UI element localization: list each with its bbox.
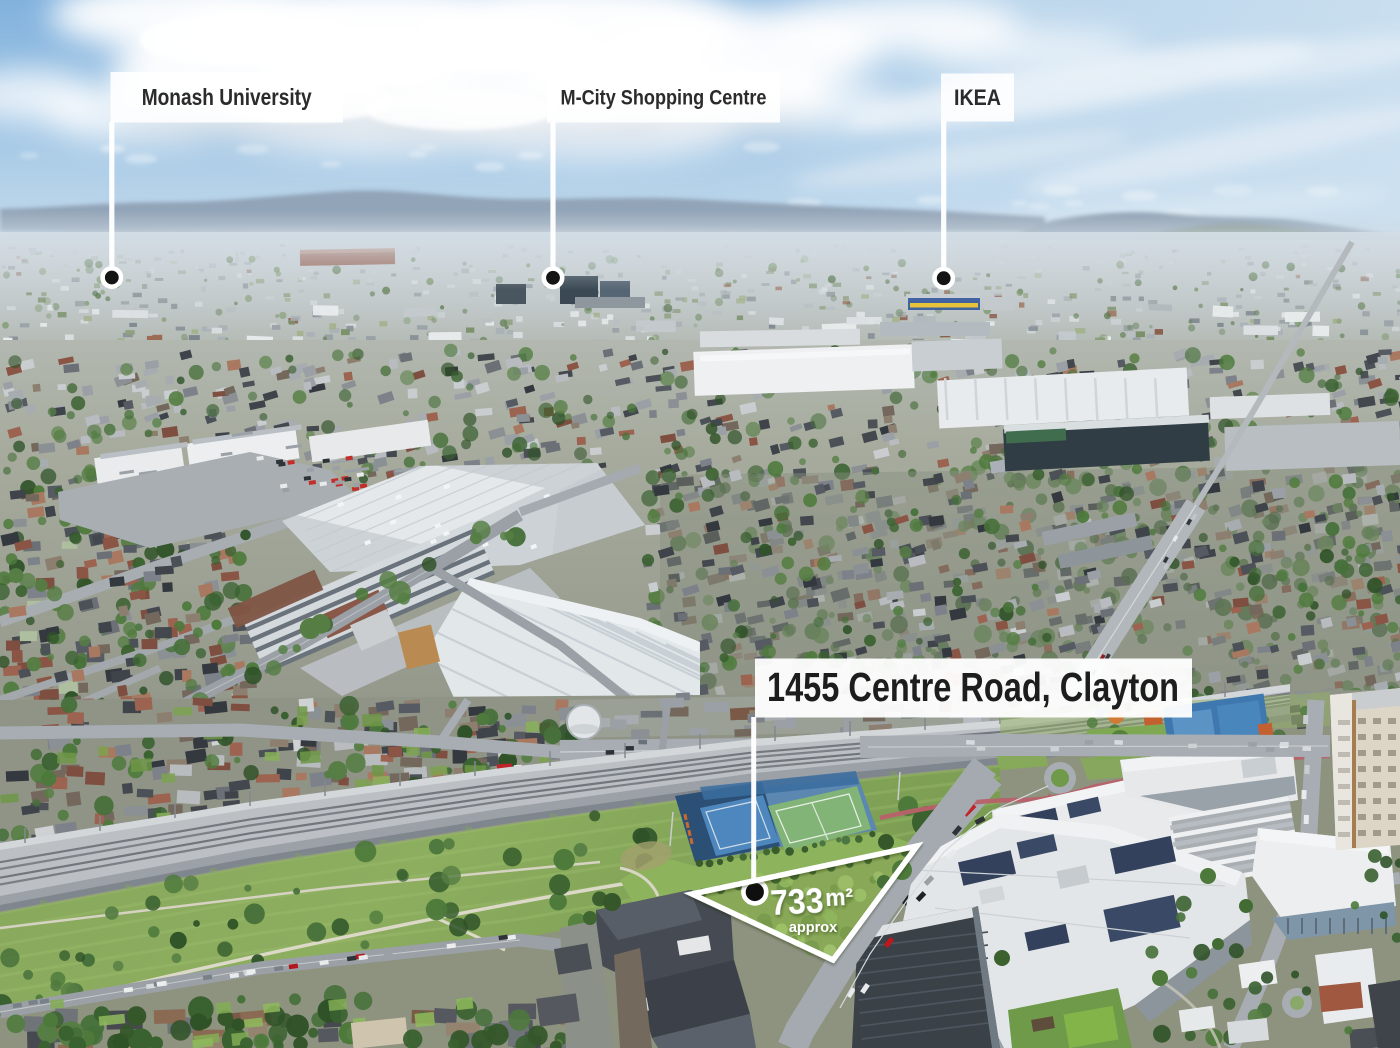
svg-text:733: 733 (769, 881, 824, 923)
svg-text:1455 Centre Road, Clayton: 1455 Centre Road, Clayton (767, 664, 1179, 710)
svg-text:Monash University: Monash University (142, 84, 312, 110)
svg-text:IKEA: IKEA (954, 85, 1001, 110)
svg-text:M-City Shopping Centre: M-City Shopping Centre (561, 87, 767, 110)
svg-text:m²: m² (825, 884, 854, 912)
svg-text:approx: approx (789, 920, 837, 936)
